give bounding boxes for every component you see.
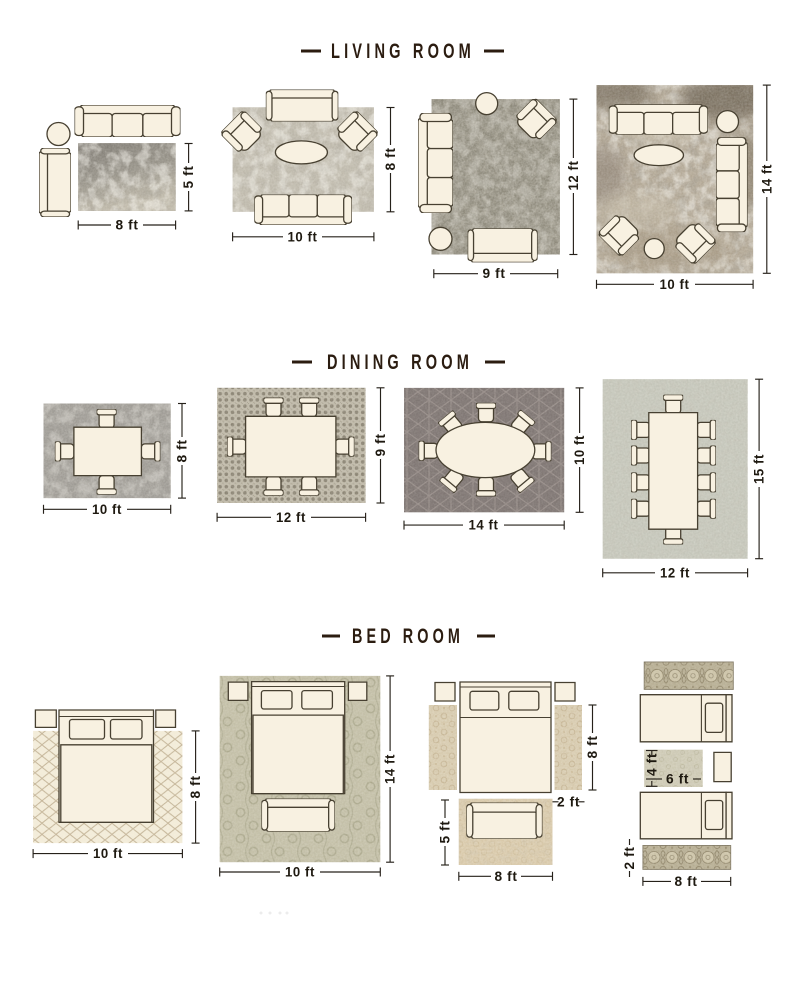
svg-text:8 ft: 8 ft <box>188 776 203 799</box>
svg-text:15 ft: 15 ft <box>752 454 767 484</box>
svg-text:12 ft: 12 ft <box>276 510 306 525</box>
svg-text:8 ft: 8 ft <box>585 736 600 759</box>
svg-text:14 ft: 14 ft <box>469 518 499 533</box>
svg-text:10 ft: 10 ft <box>660 277 690 292</box>
svg-text:9 ft: 9 ft <box>373 434 388 457</box>
svg-text:9 ft: 9 ft <box>483 266 506 281</box>
svg-text:10 ft: 10 ft <box>92 502 122 517</box>
svg-text:12 ft: 12 ft <box>566 161 581 191</box>
svg-text:LIVING ROOM: LIVING ROOM <box>331 40 475 63</box>
svg-text:BED ROOM: BED ROOM <box>352 625 464 648</box>
svg-text:14 ft: 14 ft <box>383 754 398 784</box>
svg-text:8 ft: 8 ft <box>675 874 698 889</box>
svg-text:2 ft: 2 ft <box>557 794 580 809</box>
svg-text:14 ft: 14 ft <box>759 164 774 194</box>
svg-text:10 ft: 10 ft <box>572 435 587 465</box>
svg-text:8 ft: 8 ft <box>495 869 518 884</box>
svg-text:2 ft: 2 ft <box>622 847 637 870</box>
svg-text:5 ft: 5 ft <box>438 821 453 844</box>
svg-text:5 ft: 5 ft <box>181 166 196 189</box>
svg-text:8 ft: 8 ft <box>116 218 139 233</box>
svg-text:6 ft: 6 ft <box>666 772 689 787</box>
svg-text:DINING ROOM: DINING ROOM <box>327 351 473 374</box>
svg-text:10 ft: 10 ft <box>288 229 318 244</box>
svg-text:10 ft: 10 ft <box>93 846 123 861</box>
svg-text:8 ft: 8 ft <box>383 148 398 171</box>
svg-text:4 ft: 4 ft <box>644 753 659 776</box>
svg-text:12 ft: 12 ft <box>660 565 690 580</box>
svg-text:10 ft: 10 ft <box>285 865 315 880</box>
svg-text:8 ft: 8 ft <box>175 440 190 463</box>
